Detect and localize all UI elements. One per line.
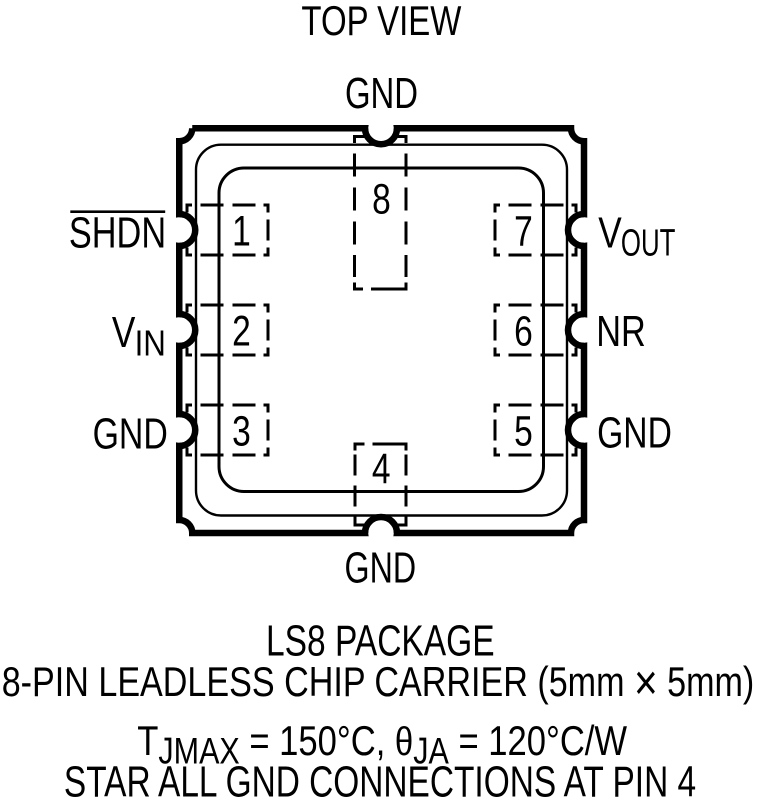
svg-text:2: 2 — [232, 308, 251, 356]
svg-text:4: 4 — [372, 445, 391, 493]
svg-text:V: V — [112, 308, 136, 357]
svg-text:7: 7 — [514, 208, 533, 256]
svg-text:GND: GND — [597, 409, 672, 457]
svg-text:6: 6 — [514, 308, 533, 356]
svg-text:5: 5 — [514, 408, 533, 456]
svg-text:8: 8 — [372, 176, 391, 224]
svg-text:NR: NR — [596, 307, 646, 356]
svg-text:8-PIN LEADLESS CHIP CARRIER (5: 8-PIN LEADLESS CHIP CARRIER (5mm × 5mm) — [2, 654, 755, 710]
svg-text:V: V — [598, 209, 622, 258]
svg-text:1: 1 — [232, 208, 251, 256]
svg-text:STAR ALL GND CONNECTIONS AT PI: STAR ALL GND CONNECTIONS AT PIN 4 — [64, 758, 696, 806]
svg-text:GND: GND — [345, 544, 417, 593]
svg-text:GND: GND — [93, 409, 168, 458]
svg-text:3: 3 — [232, 408, 251, 456]
svg-text:GND: GND — [345, 70, 418, 119]
svg-text:SHDN: SHDN — [69, 208, 166, 257]
svg-text:OUT: OUT — [621, 221, 676, 263]
svg-text:TOP VIEW: TOP VIEW — [301, 0, 461, 44]
svg-text:IN: IN — [135, 323, 166, 364]
